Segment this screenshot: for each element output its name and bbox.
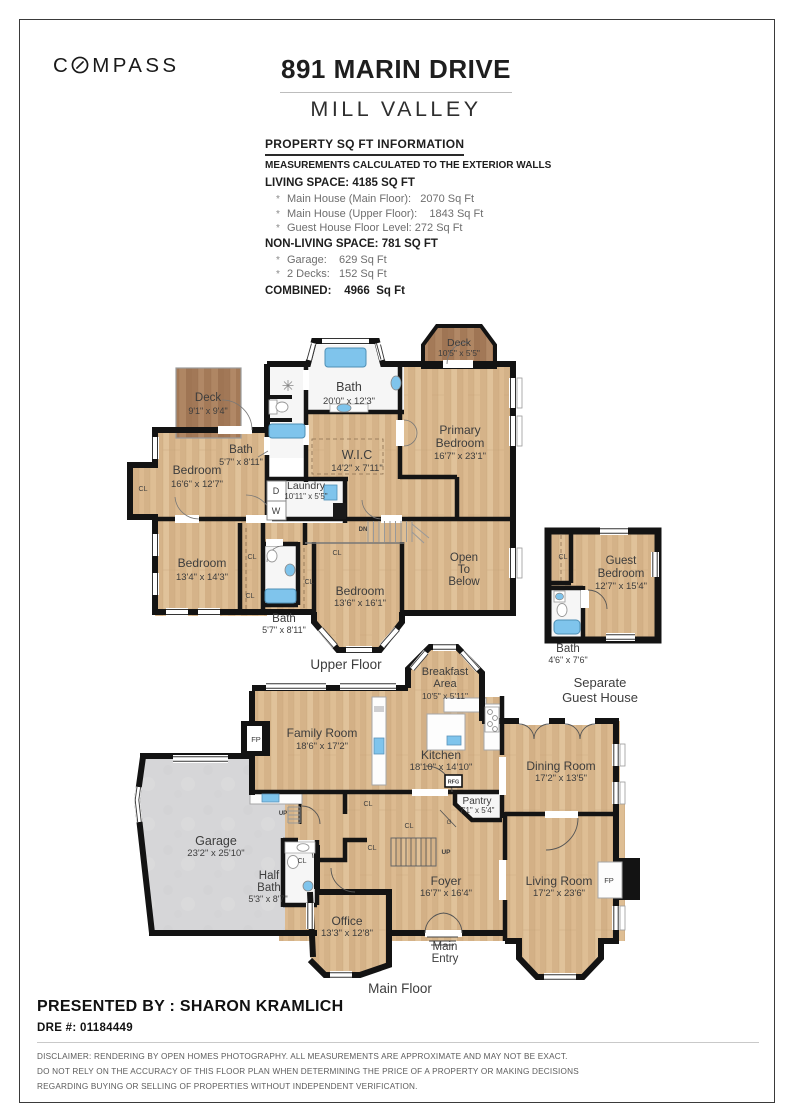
svg-text:Half: Half	[259, 870, 280, 882]
svg-text:Laundry: Laundry	[287, 480, 326, 492]
svg-text:5'7" x 8'11": 5'7" x 8'11"	[262, 625, 306, 635]
svg-text:W: W	[272, 506, 281, 516]
svg-text:7'1" x 5'4": 7'1" x 5'4"	[460, 806, 495, 815]
svg-text:17'2" x 23'6": 17'2" x 23'6"	[533, 888, 585, 899]
svg-text:16'7" x 23'1": 16'7" x 23'1"	[434, 451, 486, 462]
svg-text:4'6" x 7'6": 4'6" x 7'6"	[548, 655, 587, 665]
svg-text:Open: Open	[450, 552, 478, 564]
svg-text:Breakfast: Breakfast	[422, 666, 468, 678]
svg-text:Upper Floor: Upper Floor	[310, 657, 382, 672]
svg-text:Bedroom: Bedroom	[178, 556, 227, 570]
svg-text:CL: CL	[559, 554, 568, 561]
svg-text:Below: Below	[448, 576, 480, 588]
svg-text:RFG: RFG	[448, 780, 460, 786]
svg-text:CL: CL	[364, 801, 373, 808]
svg-text:Deck: Deck	[195, 392, 221, 404]
svg-text:CL: CL	[139, 486, 148, 493]
svg-text:Guest: Guest	[606, 555, 637, 567]
svg-text:DN: DN	[359, 527, 368, 533]
svg-text:Separate: Separate	[574, 675, 627, 690]
svg-text:Dining Room: Dining Room	[526, 759, 595, 773]
svg-text:10'5" x 5'11": 10'5" x 5'11"	[422, 691, 468, 701]
svg-text:CL: CL	[248, 554, 257, 561]
svg-text:To: To	[458, 564, 470, 576]
svg-text:Bedroom: Bedroom	[436, 436, 485, 450]
svg-text:Area: Area	[433, 678, 457, 690]
svg-text:Bath: Bath	[272, 613, 296, 625]
svg-text:FP: FP	[604, 876, 614, 885]
svg-text:G: G	[447, 820, 452, 826]
svg-text:Bath: Bath	[336, 380, 362, 394]
svg-text:CL: CL	[333, 550, 342, 557]
svg-text:Garage: Garage	[195, 834, 237, 848]
svg-text:16'7" x 16'4": 16'7" x 16'4"	[420, 888, 472, 899]
svg-text:5'7" x 8'11": 5'7" x 8'11"	[219, 457, 263, 467]
svg-text:Main: Main	[433, 941, 458, 953]
svg-text:W.I.C: W.I.C	[342, 448, 373, 462]
svg-text:Entry: Entry	[432, 953, 459, 965]
svg-text:UP: UP	[279, 811, 287, 817]
svg-text:CL: CL	[405, 823, 414, 830]
svg-text:13'4" x 14'3": 13'4" x 14'3"	[176, 572, 228, 583]
svg-text:14'2" x 7'11": 14'2" x 7'11"	[331, 463, 382, 474]
svg-text:18'6" x 17'2": 18'6" x 17'2"	[296, 741, 348, 752]
svg-text:Family Room: Family Room	[287, 726, 358, 740]
svg-text:9'1" x 9'4": 9'1" x 9'4"	[188, 406, 227, 416]
svg-text:Foyer: Foyer	[431, 874, 462, 888]
svg-text:16'6" x 12'7": 16'6" x 12'7"	[171, 479, 223, 490]
svg-text:CL: CL	[246, 593, 255, 600]
svg-text:CL: CL	[305, 579, 314, 586]
svg-text:18'10" x 14'10": 18'10" x 14'10"	[410, 762, 473, 773]
svg-text:Bedroom: Bedroom	[173, 463, 222, 477]
svg-text:Office: Office	[331, 914, 362, 928]
svg-text:Bedroom: Bedroom	[598, 568, 645, 580]
svg-text:Bath: Bath	[556, 643, 580, 655]
svg-text:CL: CL	[368, 845, 377, 852]
svg-text:Guest House: Guest House	[562, 690, 638, 705]
svg-text:Main Floor: Main Floor	[368, 981, 432, 996]
svg-text:13'6" x 16'1": 13'6" x 16'1"	[334, 598, 386, 609]
svg-text:Bath: Bath	[229, 444, 253, 456]
svg-text:17'2" x 13'5": 17'2" x 13'5"	[535, 773, 587, 784]
svg-text:FP: FP	[251, 735, 261, 744]
svg-text:5'3" x 8'7": 5'3" x 8'7"	[248, 894, 287, 904]
svg-text:10'11" x 5'5": 10'11" x 5'5"	[284, 492, 327, 501]
svg-text:Primary: Primary	[439, 423, 480, 437]
svg-text:CL: CL	[298, 858, 307, 865]
svg-text:10'5" x 5'5": 10'5" x 5'5"	[438, 348, 480, 358]
svg-text:12'7" x 15'4": 12'7" x 15'4"	[595, 581, 647, 592]
svg-text:D: D	[273, 486, 280, 496]
svg-text:UP: UP	[441, 849, 451, 856]
svg-text:20'0" x 12'3": 20'0" x 12'3"	[323, 396, 375, 407]
svg-text:13'3" x 12'8": 13'3" x 12'8"	[321, 928, 373, 939]
svg-text:Bedroom: Bedroom	[336, 584, 385, 598]
svg-text:Kitchen: Kitchen	[421, 748, 461, 762]
svg-text:23'2" x 25'10": 23'2" x 25'10"	[187, 848, 244, 859]
svg-text:Bath: Bath	[257, 882, 281, 894]
svg-text:Living Room: Living Room	[526, 874, 593, 888]
